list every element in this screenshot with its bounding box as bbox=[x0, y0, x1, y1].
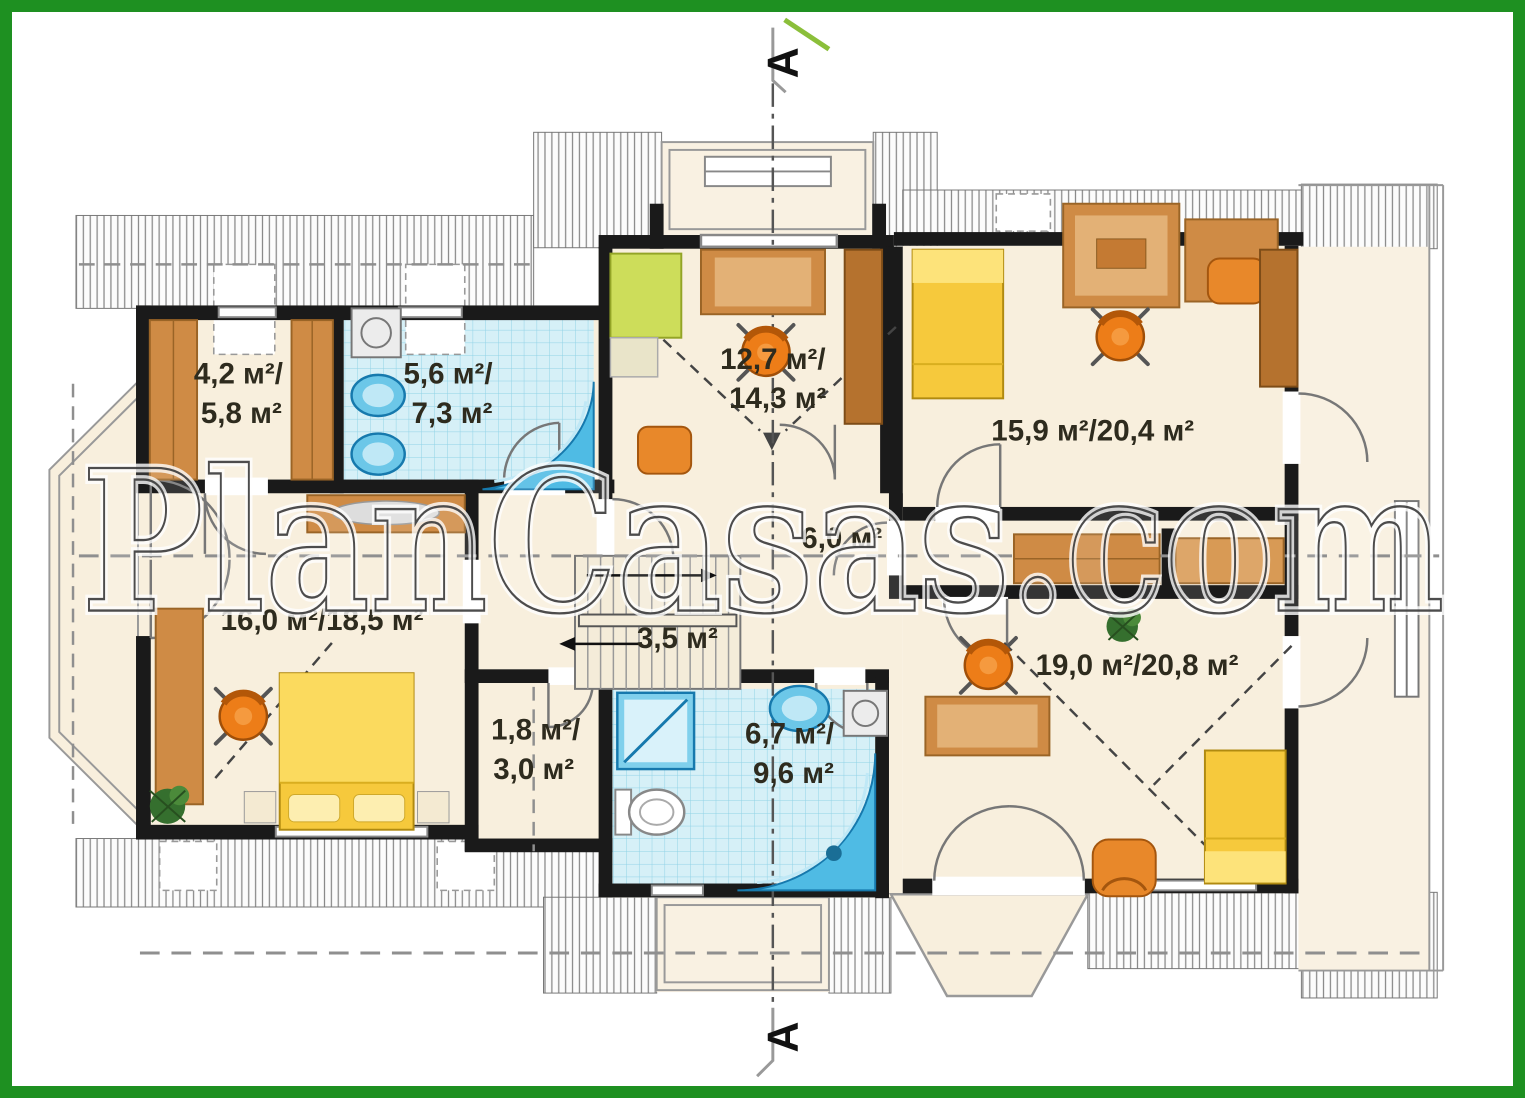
floor-plan-page: A A bbox=[0, 0, 1525, 1098]
label-room-top-center-1: 12,7 м²/ bbox=[720, 343, 826, 376]
floor-plan-drawing: A A bbox=[12, 12, 1513, 1086]
nightstand bbox=[418, 792, 449, 823]
label-closet-small-2: 3,0 м² bbox=[493, 753, 574, 786]
wardrobe bbox=[610, 254, 681, 338]
label-closet-top-left-2: 5,8 м² bbox=[201, 397, 282, 430]
toilet bbox=[615, 790, 684, 835]
label-closet-top-left-1: 4,2 м²/ bbox=[194, 358, 283, 391]
label-room-bottom-right: 19,0 м²/20,8 м² bbox=[1036, 649, 1239, 682]
label-stairs: 3,5 м² bbox=[637, 622, 718, 655]
section-tick-top bbox=[785, 20, 829, 49]
armchair bbox=[1208, 258, 1265, 303]
double-bed bbox=[280, 673, 414, 830]
armchair bbox=[1093, 840, 1156, 897]
label-closet-small-1: 1,8 м²/ bbox=[491, 714, 580, 747]
label-room-top-right: 15,9 м²/20,4 м² bbox=[991, 415, 1194, 448]
dressing-shelves bbox=[1014, 534, 1284, 583]
office-chair bbox=[961, 638, 1016, 693]
label-bath-bottom-2: 9,6 м² bbox=[753, 757, 834, 790]
single-bed bbox=[913, 250, 1004, 399]
office-chair bbox=[1093, 309, 1148, 364]
tall-cabinet bbox=[1260, 250, 1297, 387]
office-chair bbox=[216, 689, 271, 744]
label-bath-bottom-1: 6,7 м²/ bbox=[745, 718, 834, 751]
label-room-top-center-2: 14,3 м² bbox=[729, 382, 827, 415]
label-hall: 6,0 м² bbox=[801, 522, 882, 555]
label-bath-top-2: 7,3 м² bbox=[412, 397, 493, 430]
label-bedroom-left: 16,0 м²/18,5 м² bbox=[221, 604, 424, 637]
armchair bbox=[638, 427, 691, 474]
washing-machine bbox=[352, 308, 401, 357]
label-bath-top-1: 5,6 м²/ bbox=[403, 358, 492, 391]
section-label-bottom: A bbox=[759, 1022, 807, 1053]
single-bed bbox=[1205, 750, 1286, 883]
nightstand bbox=[244, 792, 275, 823]
tall-cabinet bbox=[845, 250, 882, 424]
section-label-top: A bbox=[759, 47, 807, 78]
desk bbox=[156, 609, 203, 805]
washing-machine bbox=[844, 691, 887, 736]
